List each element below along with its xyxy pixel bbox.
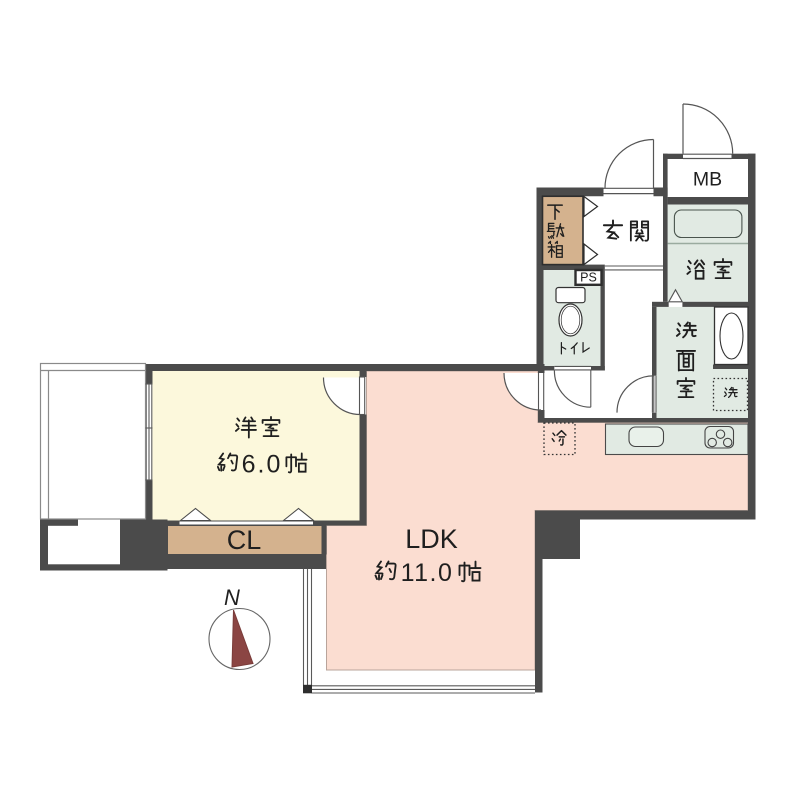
svg-text:LDK: LDK bbox=[405, 524, 458, 554]
svg-text:CL: CL bbox=[227, 525, 262, 555]
svg-text:11.0: 11.0 bbox=[401, 559, 454, 587]
svg-text:MB: MB bbox=[693, 169, 722, 191]
svg-text:6.0: 6.0 bbox=[242, 451, 283, 479]
svg-text:PS: PS bbox=[580, 271, 597, 285]
svg-text:N: N bbox=[224, 585, 240, 610]
